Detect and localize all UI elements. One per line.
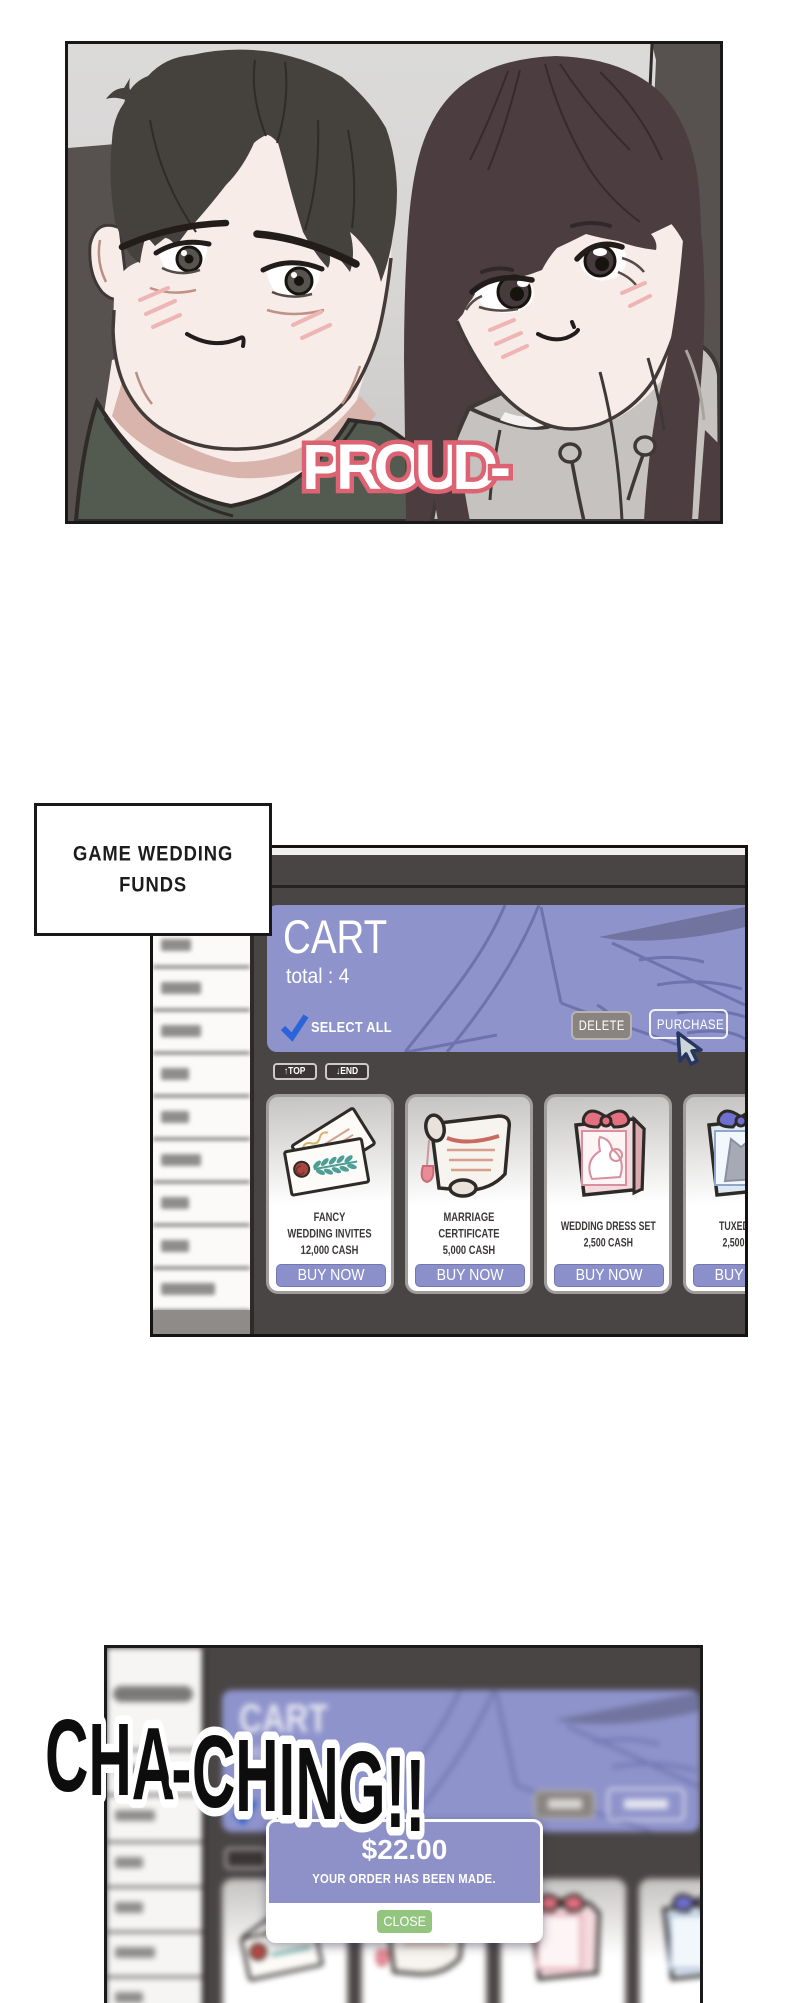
svg-text:CHA-CHING!!: CHA-CHING!! [45,1698,425,1853]
svg-text:PROUD-: PROUD- [302,431,510,503]
